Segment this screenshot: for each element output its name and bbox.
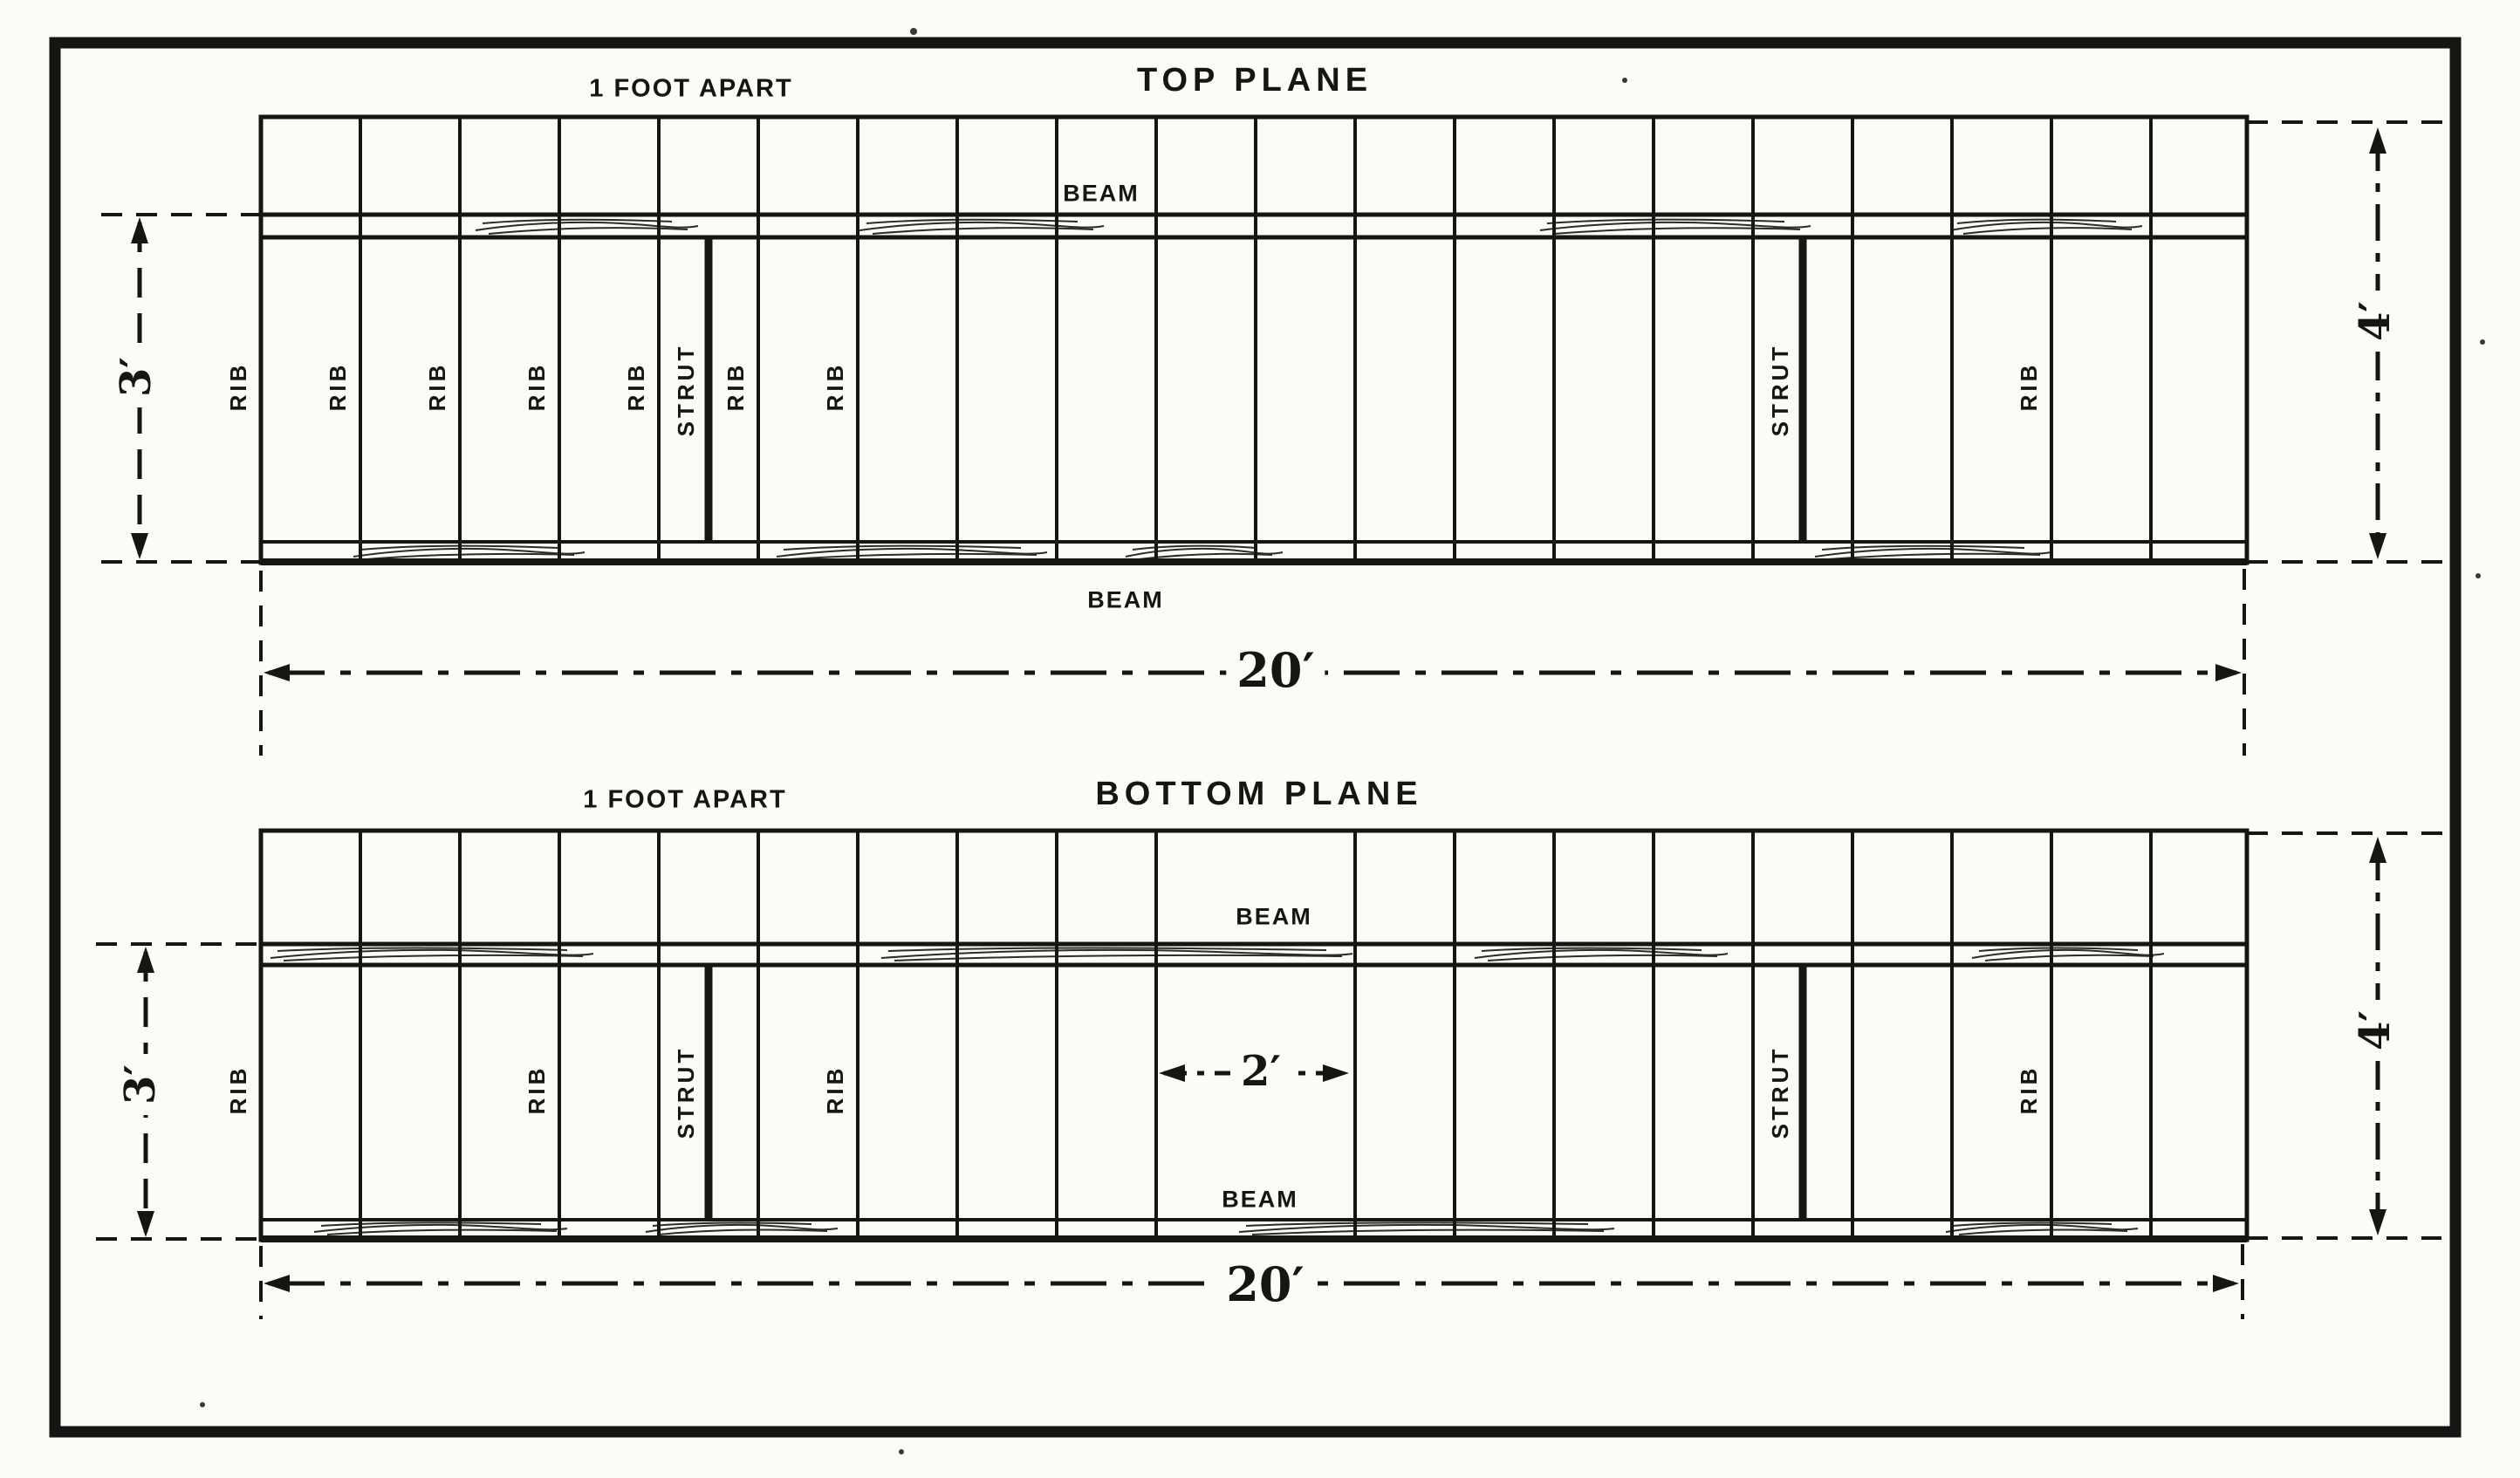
dim-center-gap-value: 2′ bbox=[1230, 1049, 1291, 1094]
top-plane-structure bbox=[261, 117, 2247, 563]
top-plane-title: TOP PLANE bbox=[1137, 64, 1373, 97]
bottom-rib-lines bbox=[360, 831, 2151, 1239]
beam-label: BEAM bbox=[1222, 1188, 1298, 1212]
rib-label: RIB bbox=[625, 362, 647, 412]
rib-label: RIB bbox=[426, 362, 449, 412]
beam-label: BEAM bbox=[1087, 589, 1164, 612]
wing-plan-figure: 1 FOOT APART TOP PLANE BEAM BEAM RIB RIB… bbox=[0, 0, 2520, 1478]
top-spacing-note: 1 FOOT APART bbox=[589, 77, 792, 102]
beam-wood-grain bbox=[270, 948, 2164, 1235]
dim-beam-gap-value: 3′ bbox=[118, 1054, 163, 1115]
bottom-spacing-note: 1 FOOT APART bbox=[583, 788, 786, 813]
top-rib-lines bbox=[360, 117, 2151, 562]
dim-span-value: 20′ bbox=[1226, 645, 1325, 695]
dim-span-value: 20′ bbox=[1215, 1259, 1314, 1310]
rib-label: RIB bbox=[227, 362, 250, 412]
dim-arrowheads bbox=[131, 127, 2386, 681]
rib-label: RIB bbox=[2017, 1065, 2040, 1115]
rib-label: RIB bbox=[326, 362, 349, 412]
dim-beam-gap-value: 3′ bbox=[113, 346, 159, 407]
rib-label: RIB bbox=[724, 362, 747, 412]
rib-label: RIB bbox=[227, 1065, 250, 1115]
rib-label: RIB bbox=[525, 1065, 548, 1115]
bottom-plane-structure bbox=[261, 831, 2247, 1240]
dim-chord-value: 4′ bbox=[2352, 291, 2398, 352]
strut-label: STRUT bbox=[1769, 1046, 1791, 1139]
beam-label: BEAM bbox=[1236, 906, 1312, 929]
rib-label: RIB bbox=[824, 1065, 846, 1115]
strut-label: STRUT bbox=[1769, 344, 1791, 437]
dim-chord-value: 4′ bbox=[2352, 1000, 2398, 1061]
rib-label: RIB bbox=[2017, 362, 2040, 412]
rib-label: RIB bbox=[525, 362, 548, 412]
beam-wood-grain bbox=[353, 220, 2142, 559]
beam-label: BEAM bbox=[1063, 182, 1140, 206]
strut-label: STRUT bbox=[675, 1046, 697, 1139]
strut-label: STRUT bbox=[675, 344, 697, 437]
rib-label: RIB bbox=[824, 362, 846, 412]
bottom-plane-title: BOTTOM PLANE bbox=[1095, 777, 1422, 811]
